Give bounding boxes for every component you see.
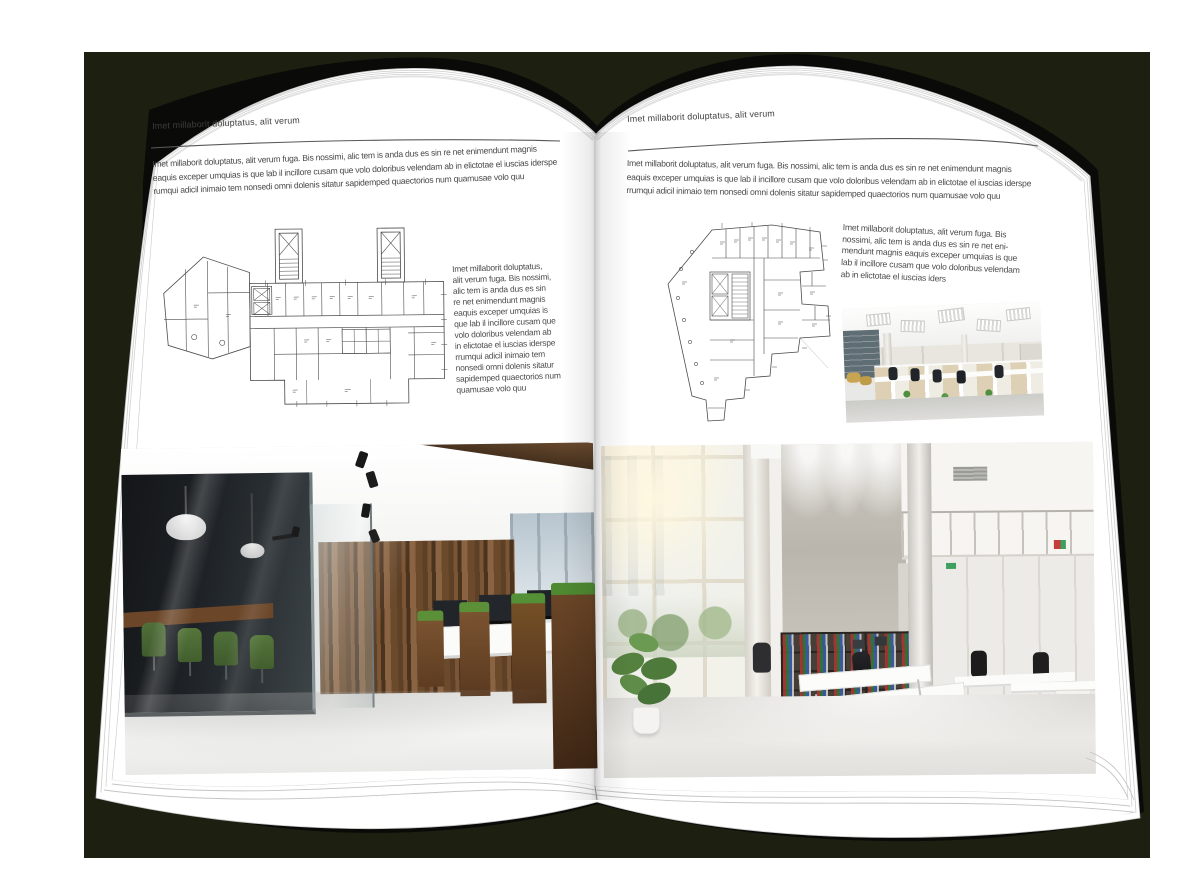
photo-office-right <box>601 442 1096 778</box>
left-page-side-text: Imet millaborit doluptatus, alit verum f… <box>452 260 581 396</box>
concrete-wall <box>781 443 907 636</box>
office-chair <box>994 365 1003 378</box>
right-page-side-text: Imet millaborit doluptatus, alit verum f… <box>840 222 1047 290</box>
photo-office-left <box>121 442 598 775</box>
office-chair <box>888 367 897 380</box>
lounge-chair <box>860 376 872 385</box>
floor-plan-left <box>155 224 449 415</box>
stair-tower-icon <box>377 228 405 282</box>
floor-plan-right <box>652 220 842 430</box>
planter-box <box>417 621 444 687</box>
stair-tower-icon <box>275 229 303 283</box>
office-chair <box>932 369 941 382</box>
exit-sign-icon <box>946 563 956 569</box>
office-chair <box>956 370 965 383</box>
light-panel-icon <box>1006 307 1031 322</box>
plant-pot <box>633 708 659 734</box>
ac-grille-icon <box>953 467 987 481</box>
light-panel-icon <box>866 313 891 327</box>
monitor-icon <box>853 640 865 649</box>
planter-box <box>459 612 490 696</box>
photo-office-small <box>842 301 1044 423</box>
floor-reflection <box>124 688 597 775</box>
lounge-chair <box>846 372 860 383</box>
right-header-rule <box>626 130 1042 154</box>
light-panel-icon <box>901 320 925 333</box>
office-chair <box>910 368 919 381</box>
safety-sign-icon <box>1054 540 1066 549</box>
light-panel-icon <box>976 319 1001 333</box>
right-page-intro: Imet millaborit doluptatus, alit verum f… <box>626 157 1055 204</box>
glass-meeting-room <box>121 472 315 717</box>
glass-partition <box>310 504 375 709</box>
floor-reflection <box>603 694 1096 778</box>
brochure-mockup: Imet millaborit doluptatus, alit verum I… <box>0 0 1200 891</box>
glass-reflection <box>121 472 312 713</box>
office-chair <box>753 643 771 673</box>
round-column <box>907 443 933 695</box>
office-chair <box>971 651 987 678</box>
monitor-icon <box>875 637 887 646</box>
